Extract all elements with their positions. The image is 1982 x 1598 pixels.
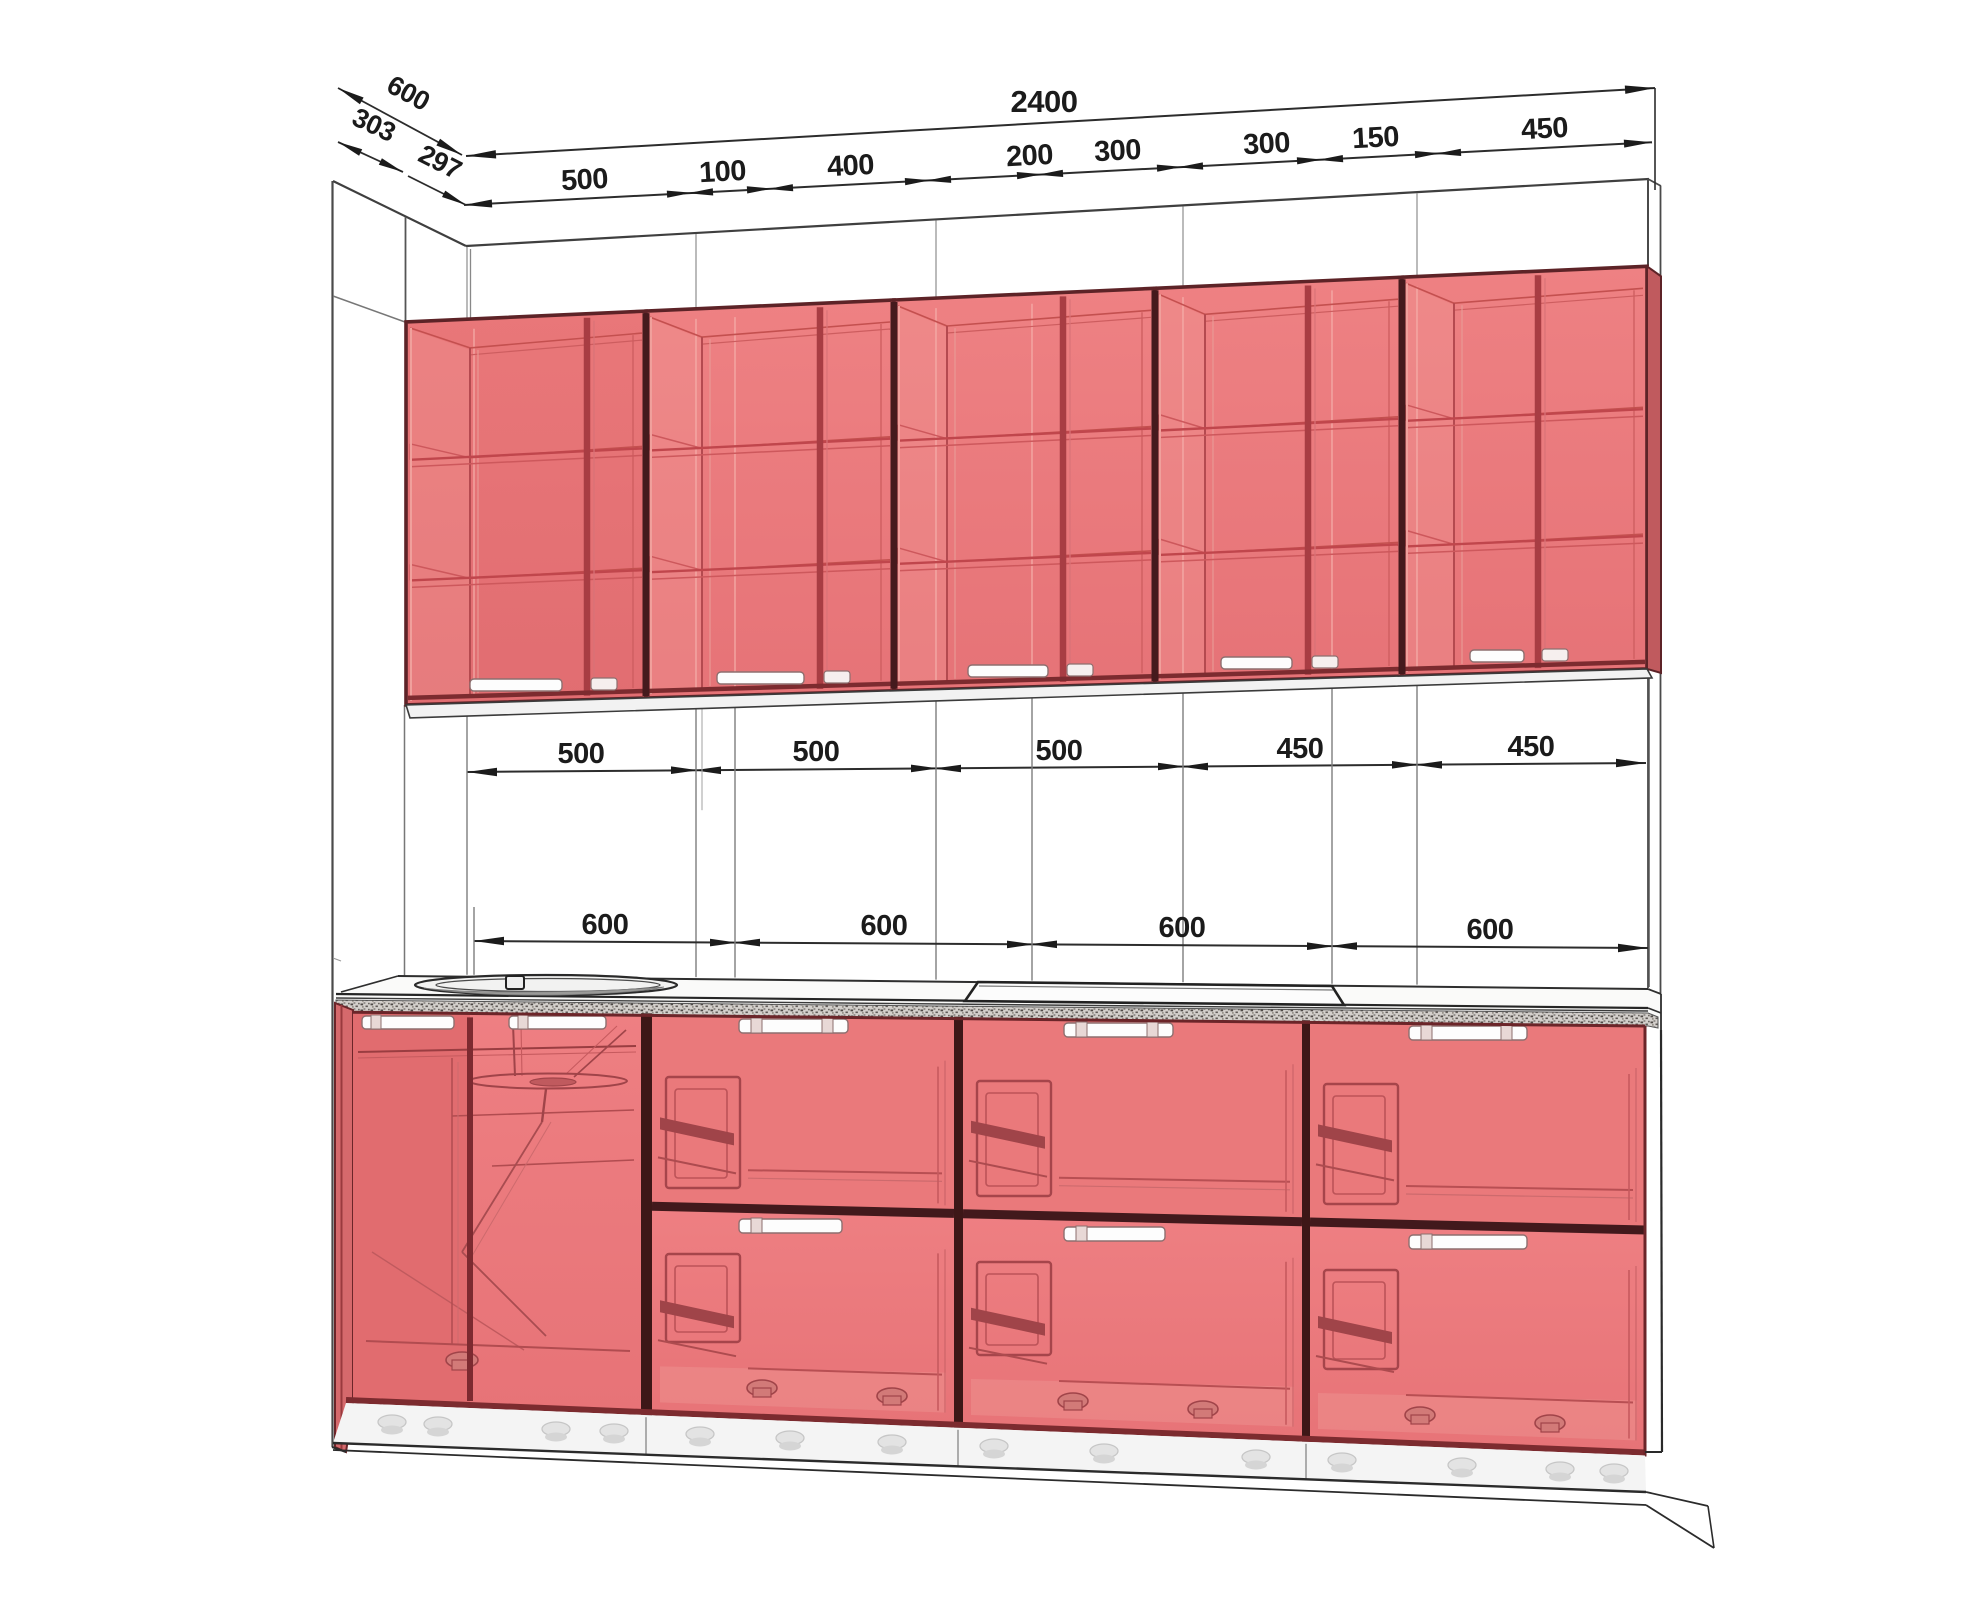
svg-text:500: 500 — [560, 163, 609, 197]
svg-text:600: 600 — [1159, 912, 1206, 944]
svg-text:150: 150 — [1351, 121, 1400, 155]
svg-text:600: 600 — [1467, 914, 1514, 946]
svg-text:450: 450 — [1277, 733, 1324, 765]
svg-text:200: 200 — [1005, 139, 1054, 173]
svg-text:450: 450 — [1508, 731, 1555, 763]
svg-text:400: 400 — [826, 149, 875, 183]
svg-text:500: 500 — [558, 738, 605, 770]
svg-text:500: 500 — [1036, 735, 1083, 767]
svg-text:600: 600 — [582, 909, 629, 941]
svg-text:100: 100 — [698, 155, 747, 189]
svg-text:450: 450 — [1520, 112, 1569, 146]
svg-text:300: 300 — [1242, 127, 1291, 161]
svg-text:2400: 2400 — [1011, 84, 1078, 119]
svg-text:300: 300 — [1093, 134, 1142, 168]
svg-text:600: 600 — [861, 910, 908, 942]
svg-text:500: 500 — [793, 736, 840, 768]
